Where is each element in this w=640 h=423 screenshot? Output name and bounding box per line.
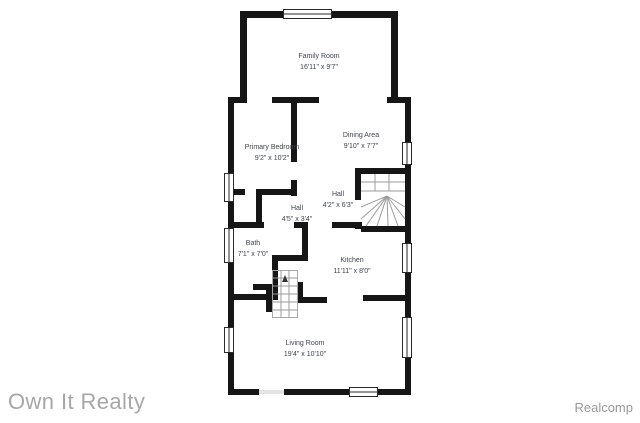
room-name: Dining Area xyxy=(343,130,379,141)
room-name: Family Room xyxy=(298,51,339,62)
room-dims: 7'1" x 7'0" xyxy=(238,249,269,260)
room-label-hall-main: Hall 4'2" x 6'3" xyxy=(323,189,354,211)
agency-watermark: Own It Realty xyxy=(8,389,145,415)
window xyxy=(283,9,332,19)
room-name: Hall xyxy=(323,189,354,200)
room-name: Kitchen xyxy=(333,255,370,266)
room-label-living-room: Living Room 19'4" x 10'10" xyxy=(284,338,326,360)
provider-watermark: Realcomp xyxy=(574,400,633,415)
wall xyxy=(355,222,362,229)
wall xyxy=(266,284,272,312)
winder-stairs xyxy=(361,174,405,226)
room-label-hall-small: Hall 4'5" x 3'4" xyxy=(282,203,313,225)
window xyxy=(224,173,234,202)
room-name: Living Room xyxy=(284,338,326,349)
wall xyxy=(363,295,405,301)
wall xyxy=(234,189,245,195)
window xyxy=(224,228,234,263)
room-dims: 9'2" x 10'2" xyxy=(245,153,299,164)
room-name: Hall xyxy=(282,203,313,214)
window xyxy=(224,327,234,353)
room-dims: 9'10" x 7'7" xyxy=(343,141,379,152)
wall xyxy=(253,284,267,290)
room-label-family-room: Family Room 16'11" x 9'7" xyxy=(298,51,339,73)
wall xyxy=(355,168,361,200)
wall xyxy=(297,297,327,303)
wall xyxy=(361,226,405,232)
room-dims: 19'4" x 10'10" xyxy=(284,349,326,360)
window xyxy=(402,317,412,358)
room-label-dining-area: Dining Area 9'10" x 7'7" xyxy=(343,130,379,152)
window xyxy=(402,142,412,165)
room-name: Primary Bedroom xyxy=(245,142,299,153)
floorplan-canvas: Family Room 16'11" x 9'7" Primary Bedroo… xyxy=(0,0,640,423)
wall xyxy=(240,11,247,103)
room-label-bath: Bath 7'1" x 7'0" xyxy=(238,238,269,260)
wall xyxy=(228,389,259,395)
room-dims: 4'2" x 6'3" xyxy=(323,200,354,211)
room-label-primary-bedroom: Primary Bedroom 9'2" x 10'2" xyxy=(245,142,299,164)
wall xyxy=(391,11,398,103)
room-label-kitchen: Kitchen 11'11" x 8'0" xyxy=(333,255,370,277)
room-dims: 11'11" x 8'0" xyxy=(333,266,370,277)
room-dims: 16'11" x 9'7" xyxy=(298,62,339,73)
window xyxy=(402,243,412,273)
room-dims: 4'5" x 3'4" xyxy=(282,214,313,225)
room-name: Bath xyxy=(238,238,269,249)
wall xyxy=(284,389,411,395)
wall xyxy=(355,168,405,174)
stair-direction-arrow xyxy=(282,275,288,282)
door-threshold xyxy=(259,390,284,394)
window xyxy=(349,387,378,397)
wall xyxy=(256,189,262,222)
